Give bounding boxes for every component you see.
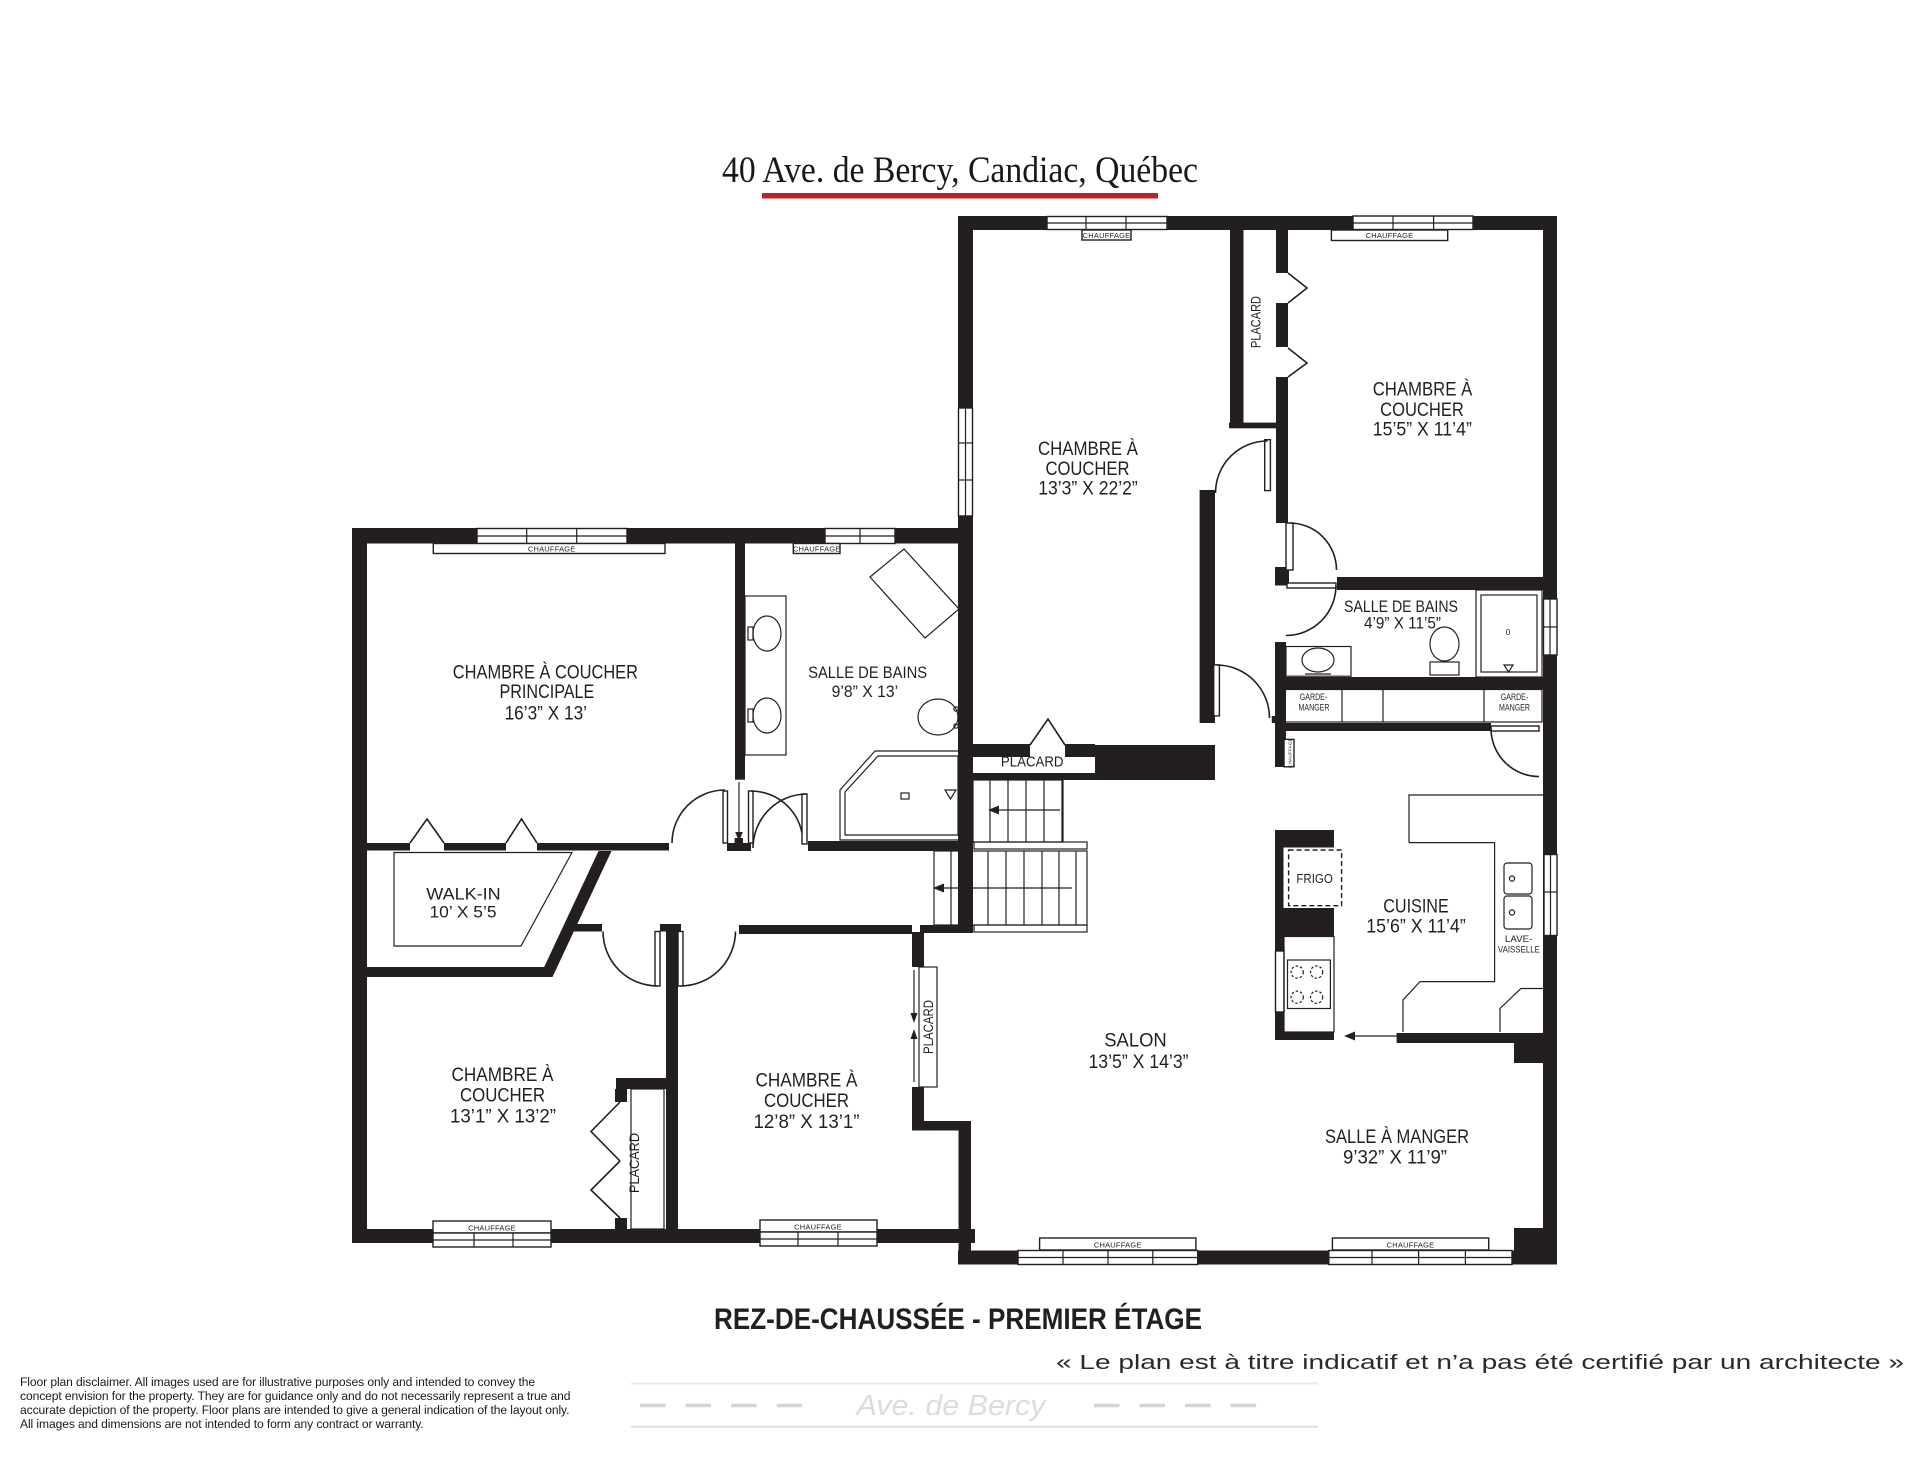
svg-text:4’9” X 11’5”: 4’9” X 11’5” [1364, 614, 1441, 633]
svg-text:10’ X 5’5: 10’ X 5’5 [430, 904, 497, 922]
svg-text:15’5” X 11’4”: 15’5” X 11’4” [1373, 420, 1472, 441]
svg-text:CHAUFFAGE: CHAUFFAGE [1387, 1241, 1435, 1250]
svg-text:40 Ave. de Bercy, Candiac, Qué: 40 Ave. de Bercy, Candiac, Québec [722, 150, 1198, 191]
svg-text:16’3” X 13’: 16’3” X 13’ [505, 703, 587, 724]
svg-text:PRINCIPALE: PRINCIPALE [500, 682, 595, 703]
svg-text:13’5” X 14’3”: 13’5” X 14’3” [1089, 1052, 1189, 1073]
svg-text:CHAMBRE À: CHAMBRE À [1373, 378, 1473, 401]
svg-text:CHAUFFAGE: CHAUFFAGE [528, 544, 576, 553]
svg-text:COUCHER: COUCHER [1380, 400, 1464, 421]
svg-text:SALON: SALON [1104, 1031, 1167, 1052]
svg-text:concept envision for the prope: concept envision for the property. They … [20, 1389, 570, 1403]
svg-text:GARDE-: GARDE- [1501, 692, 1529, 702]
svg-text:CHAMBRE À COUCHER: CHAMBRE À COUCHER [453, 660, 638, 683]
svg-text:SALLE DE BAINS: SALLE DE BAINS [808, 663, 927, 682]
svg-text:13’1” X 13’2”: 13’1” X 13’2” [450, 1107, 556, 1128]
svg-text:« Le plan est à titre indicati: « Le plan est à titre indicatif et n’a p… [1056, 1351, 1904, 1374]
svg-text:CHAUFFAGE: CHAUFFAGE [1288, 738, 1293, 768]
svg-text:COUCHER: COUCHER [1046, 459, 1130, 480]
svg-text:CUISINE: CUISINE [1383, 897, 1449, 918]
svg-text:CHAUFFAGE: CHAUFFAGE [794, 1223, 842, 1232]
svg-text:CHAUFFAGE: CHAUFFAGE [468, 1224, 516, 1233]
svg-text:COUCHER: COUCHER [764, 1091, 849, 1112]
svg-text:12’8” X 13’1”: 12’8” X 13’1” [754, 1112, 860, 1133]
svg-text:REZ-DE-CHAUSSÉE - PREMIER ÉTAG: REZ-DE-CHAUSSÉE - PREMIER ÉTAGE [714, 1302, 1202, 1336]
svg-text:MANGER: MANGER [1299, 703, 1330, 713]
svg-text:PLACARD: PLACARD [627, 1133, 642, 1193]
svg-text:15’6” X 11’4”: 15’6” X 11’4” [1366, 917, 1466, 938]
svg-text:PLACARD: PLACARD [921, 1000, 936, 1054]
svg-text:accurate depiction of the prop: accurate depiction of the property. Floo… [20, 1403, 569, 1417]
svg-text:CHAMBRE À: CHAMBRE À [1038, 437, 1138, 460]
svg-text:FRIGO: FRIGO [1296, 871, 1332, 886]
svg-text:CHAUFFAGE: CHAUFFAGE [1083, 231, 1131, 240]
svg-text:VAISSELLE: VAISSELLE [1498, 945, 1540, 955]
svg-text:9’8” X 13’: 9’8” X 13’ [832, 682, 899, 701]
svg-text:SALLE À MANGER: SALLE À MANGER [1325, 1125, 1469, 1148]
svg-text:PLACARD: PLACARD [1249, 296, 1264, 348]
svg-text:CHAUFFAGE: CHAUFFAGE [1366, 231, 1414, 240]
svg-text:0: 0 [1506, 627, 1511, 637]
svg-text:LAVE-: LAVE- [1505, 934, 1533, 944]
svg-text:Ave. de Bercy: Ave. de Bercy [854, 1390, 1047, 1422]
svg-text:CHAUFFAGE: CHAUFFAGE [793, 544, 841, 553]
svg-text:CHAUFFAGE: CHAUFFAGE [1094, 1241, 1142, 1250]
svg-text:All images and dimensions are: All images and dimensions are not intend… [20, 1417, 424, 1431]
svg-text:PLACARD: PLACARD [1001, 754, 1064, 771]
svg-text:Floor plan disclaimer. All ima: Floor plan disclaimer. All images used a… [20, 1375, 535, 1389]
svg-text:WALK-IN: WALK-IN [426, 886, 500, 904]
svg-text:CHAMBRE À: CHAMBRE À [452, 1063, 554, 1086]
svg-text:MANGER: MANGER [1499, 703, 1530, 713]
svg-text:CHAMBRE À: CHAMBRE À [756, 1069, 858, 1092]
svg-text:GARDE-: GARDE- [1300, 692, 1328, 702]
svg-text:13’3” X 22’2”: 13’3” X 22’2” [1038, 479, 1138, 500]
svg-text:COUCHER: COUCHER [460, 1086, 545, 1107]
svg-text:9’32” X 11’9”: 9’32” X 11’9” [1343, 1148, 1447, 1169]
